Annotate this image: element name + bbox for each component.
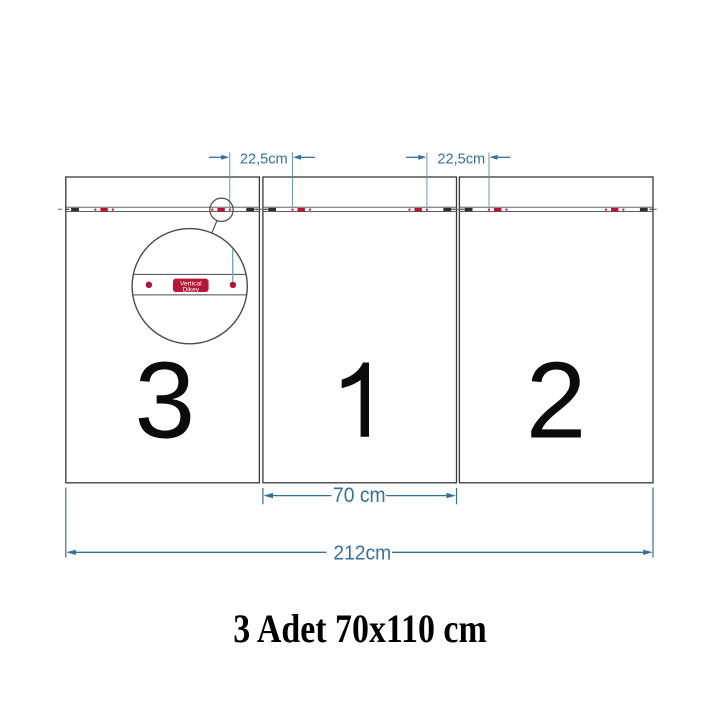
svg-text:22,5cm: 22,5cm: [437, 152, 485, 168]
svg-text:3 Adet 70x110 cm: 3 Adet 70x110 cm: [233, 606, 486, 651]
svg-text:22,5cm: 22,5cm: [240, 152, 288, 168]
svg-text:Dikey: Dikey: [183, 286, 200, 293]
svg-text:3: 3: [134, 340, 195, 462]
svg-text:2: 2: [526, 340, 587, 462]
svg-text:70 cm: 70 cm: [333, 484, 386, 507]
svg-text:212cm: 212cm: [333, 543, 391, 565]
